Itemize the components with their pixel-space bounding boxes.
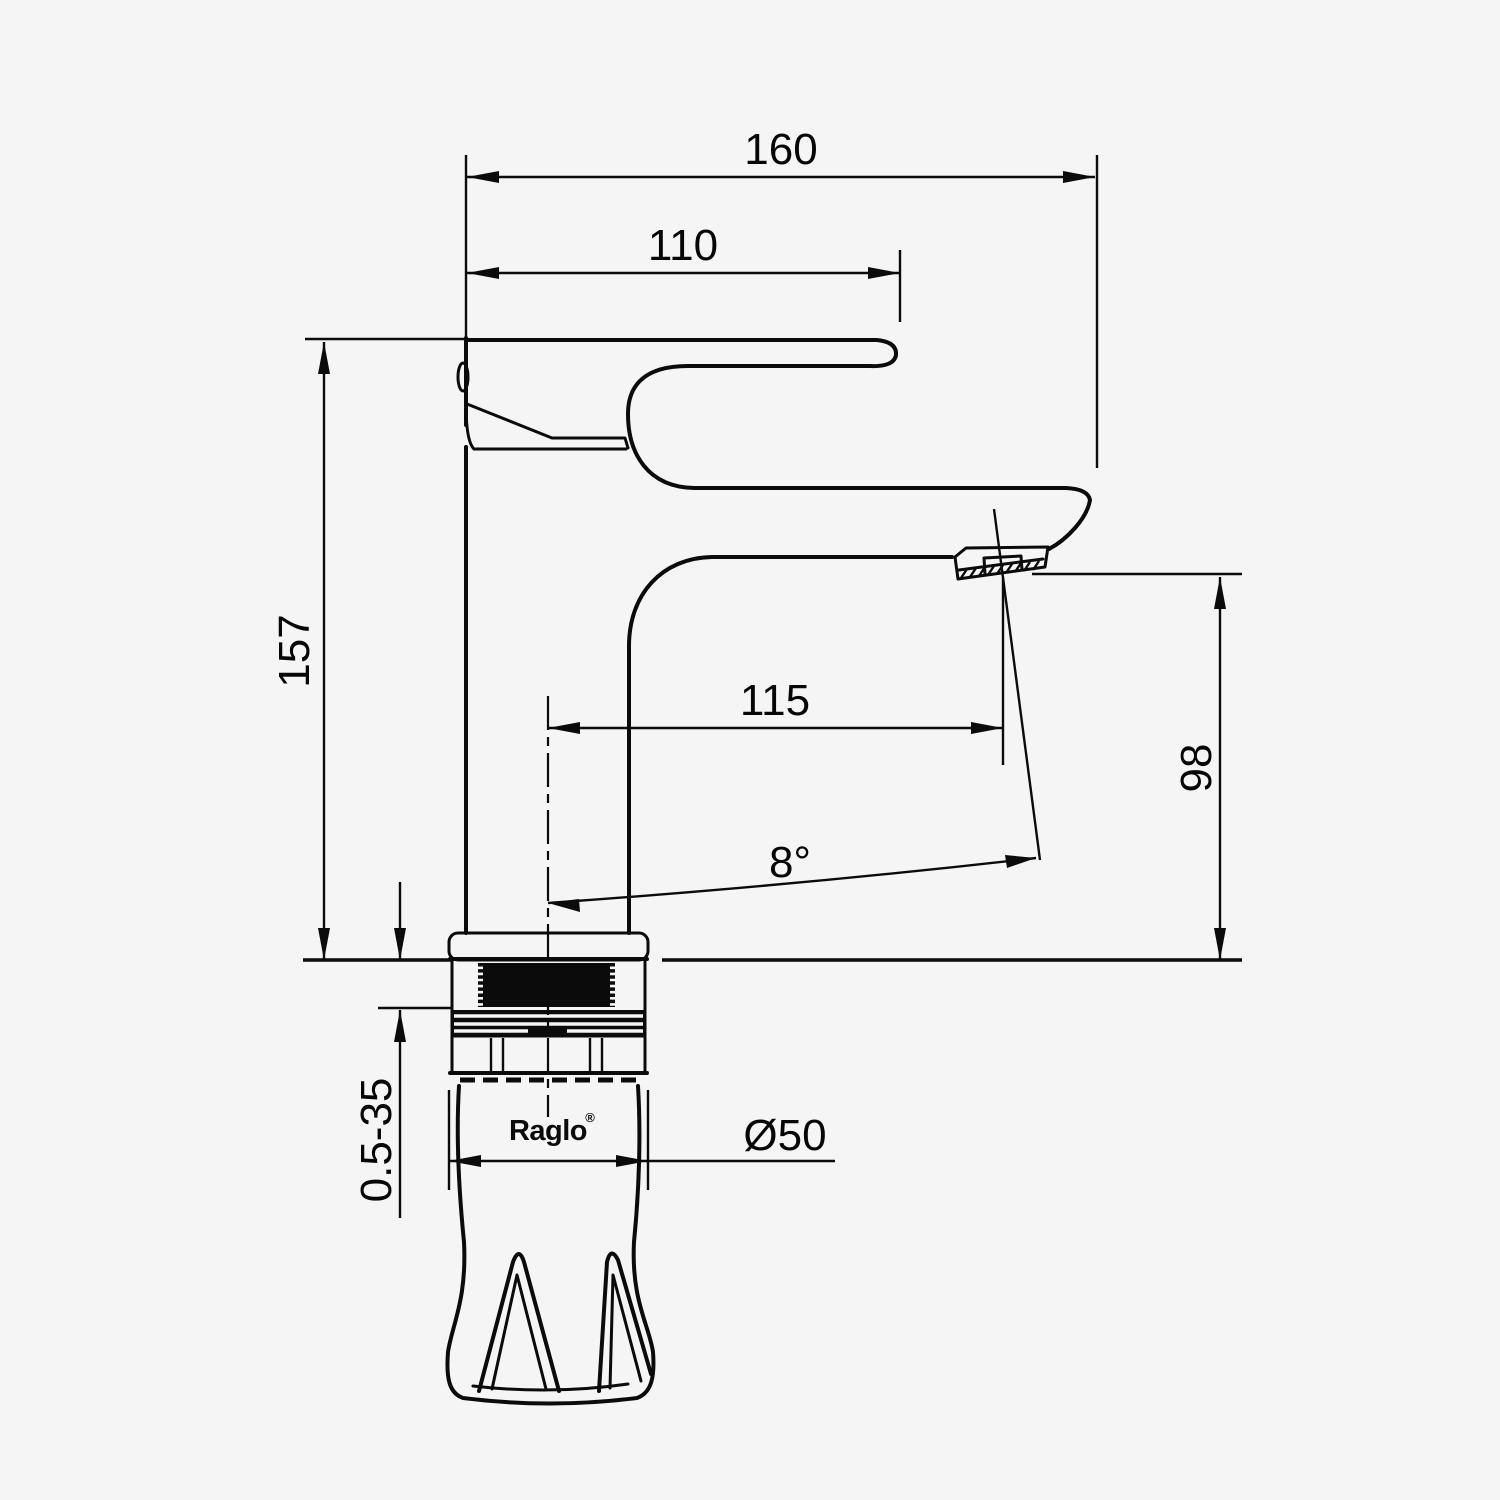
arrowhead [868,267,900,279]
arrowhead [394,928,406,960]
left-prong-inner [492,1275,546,1389]
dim-label-spout-height: 98 [1172,744,1221,793]
arrowhead [1214,577,1226,609]
base-skirt-inner-bottom [473,1384,628,1390]
dim-spout-reach: 115 [548,578,1003,765]
dim-base-diameter: Ø50 [449,1090,835,1190]
arrowhead [318,928,330,960]
hose-prongs [479,1253,651,1391]
arrowhead [1005,855,1036,868]
dim-spout-angle: 8° [548,838,1036,912]
faucet-handle-outline [466,340,1090,549]
arrowhead [394,1010,406,1042]
dim-label-total-height: 157 [270,614,319,687]
dim-spout-height: 98 [1032,574,1242,960]
arrowhead [1063,171,1095,183]
arrowhead [548,722,580,734]
drawing-sheet: Raglo ® 160 110 157 98 [0,0,1500,1500]
arrowhead [467,267,499,279]
dim-label-mounting-depth: 0.5-35 [352,1078,401,1203]
dim-label-overall-reach: 160 [744,125,817,174]
dim-handle-length: 110 [467,221,900,322]
dim-label-base-diameter: Ø50 [743,1111,826,1160]
arrowhead [971,722,1003,734]
mounting-assembly: Raglo ® [447,933,653,1404]
dim-label-handle-length: 110 [648,221,718,270]
dim-label-spout-angle: 8° [769,838,811,887]
cap-front-curve [466,404,474,449]
arrowhead [1214,928,1226,960]
threaded-shank [483,963,610,1007]
arrowhead [548,899,580,912]
handle-underside-line [467,404,628,448]
dim-overall-reach: 160 [466,125,1097,468]
brand-logo: Raglo [509,1115,587,1147]
left-prong-outer [479,1254,559,1391]
arrowhead [616,1155,648,1167]
brand-registered-mark: ® [585,1110,595,1125]
dim-total-height: 157 [270,339,466,960]
arrowhead [467,171,499,183]
dim-label-spout-reach: 115 [740,676,810,725]
faucet-dimension-drawing: Raglo ® 160 110 157 98 [0,0,1500,1500]
arrowhead [449,1155,481,1167]
arrowhead [318,342,330,374]
set-screw-hole [458,363,468,391]
dim-mounting-depth: 0.5-35 [352,882,452,1218]
